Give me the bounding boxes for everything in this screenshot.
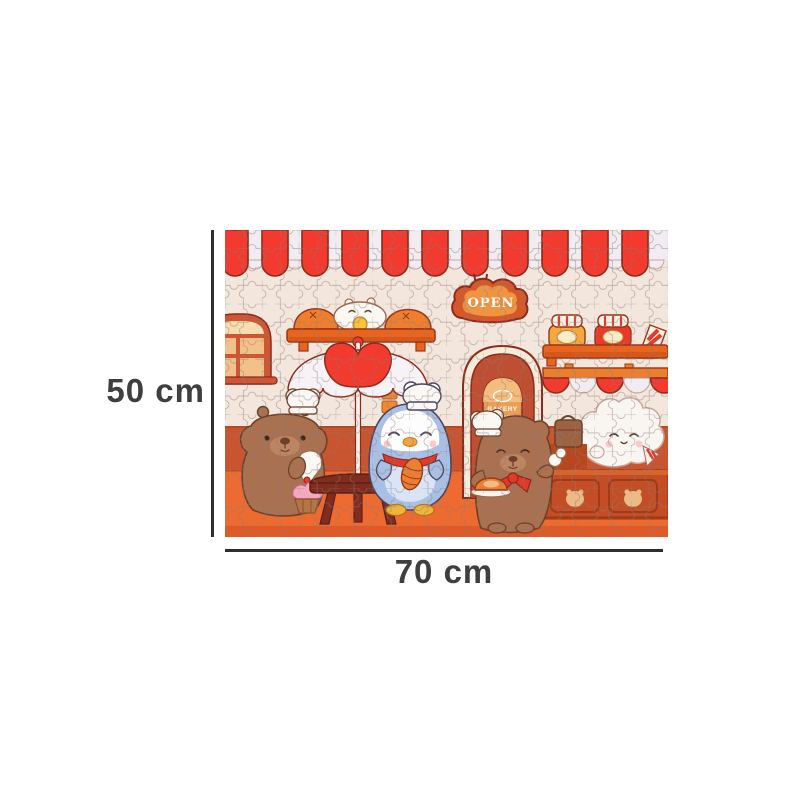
width-dimension-line [225,549,663,552]
height-dimension-line [211,230,214,537]
height-dimension-label: 50 cm [40,372,205,410]
width-dimension-label: 70 cm [294,553,594,591]
puzzle-image: OPEN BAKERY [225,230,668,537]
puzzle-texture [225,230,668,537]
product-dimension-figure: 50 cm 70 cm [0,0,800,800]
